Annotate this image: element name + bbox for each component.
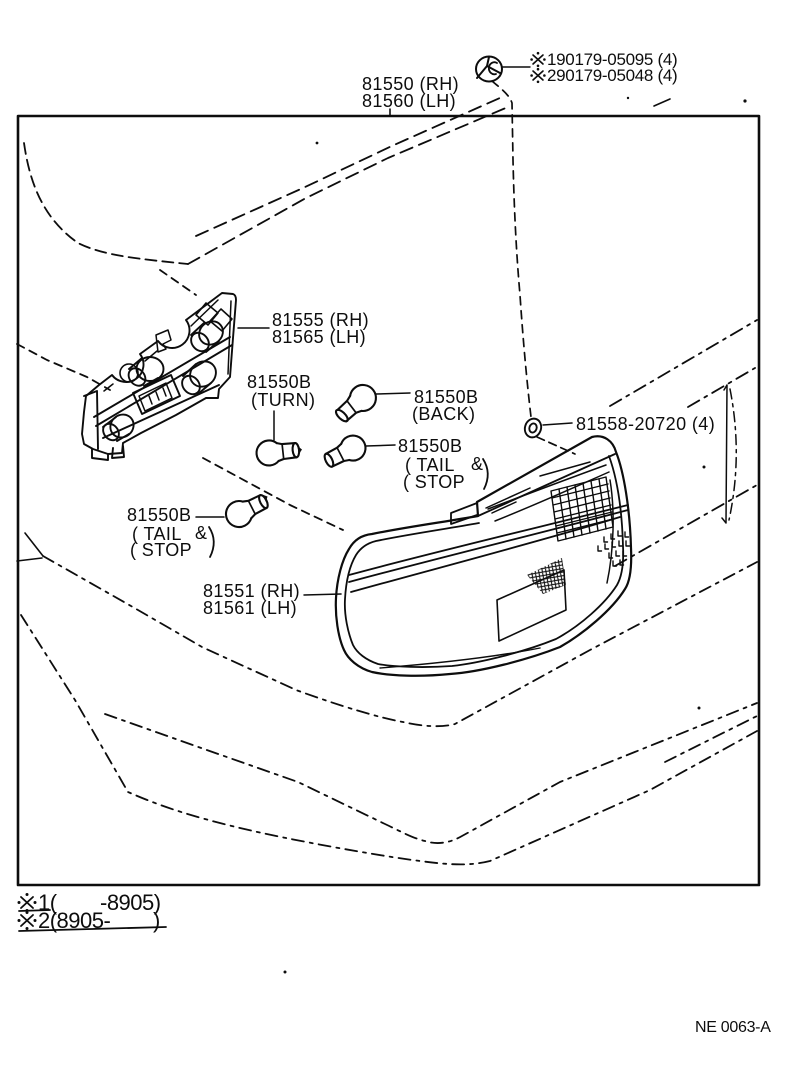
svg-text:81560 (LH): 81560 (LH) [362,91,456,111]
svg-text:( STOP: ( STOP [130,540,192,560]
svg-text:81558-20720 (4): 81558-20720 (4) [576,414,715,434]
svg-text:(TURN): (TURN) [251,390,315,410]
svg-text:( STOP: ( STOP [403,472,465,492]
svg-text:&: & [471,454,483,474]
svg-text:81550B: 81550B [247,372,311,392]
svg-text:NE 0063-A: NE 0063-A [695,1019,771,1036]
svg-text:81561 (LH): 81561 (LH) [203,598,297,618]
svg-text:): ) [153,908,160,933]
svg-text:290179-05048 (4): 290179-05048 (4) [547,66,677,85]
svg-text:(BACK): (BACK) [412,404,475,424]
svg-text:81565 (LH): 81565 (LH) [272,327,366,347]
svg-text:&: & [195,523,207,543]
svg-text:81550B: 81550B [127,505,191,525]
svg-text:81550B: 81550B [398,436,462,456]
